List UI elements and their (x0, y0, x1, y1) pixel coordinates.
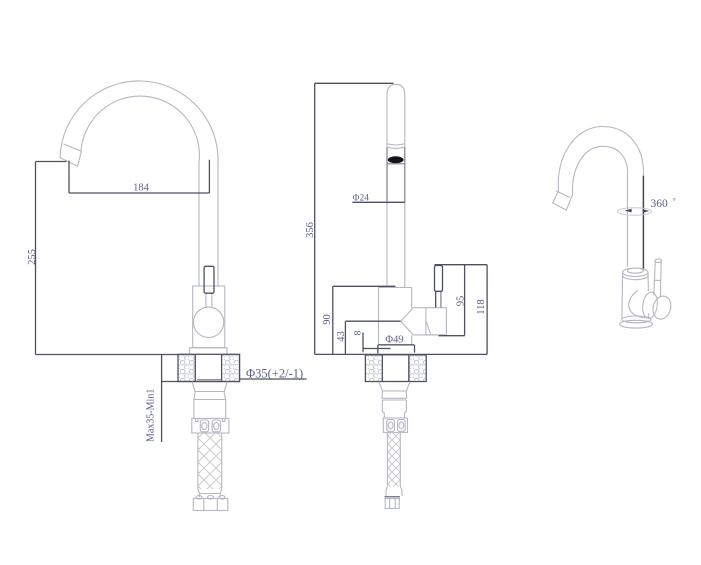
svg-text:8: 8 (353, 330, 363, 335)
svg-text:356: 356 (305, 222, 316, 238)
svg-text:118: 118 (476, 299, 487, 314)
svg-text:95: 95 (456, 296, 467, 307)
svg-text:360: 360 (651, 198, 669, 210)
svg-text:Φ35(+2/-1): Φ35(+2/-1) (246, 367, 303, 381)
svg-text:255: 255 (27, 249, 38, 265)
svg-text:90: 90 (322, 314, 333, 325)
svg-text:43: 43 (336, 331, 347, 342)
svg-text:Φ49: Φ49 (385, 335, 403, 346)
svg-text:°: ° (673, 197, 676, 206)
svg-text:Max35-Min1: Max35-Min1 (146, 389, 157, 442)
svg-text:Φ24: Φ24 (353, 194, 370, 204)
svg-text:184: 184 (133, 183, 150, 194)
